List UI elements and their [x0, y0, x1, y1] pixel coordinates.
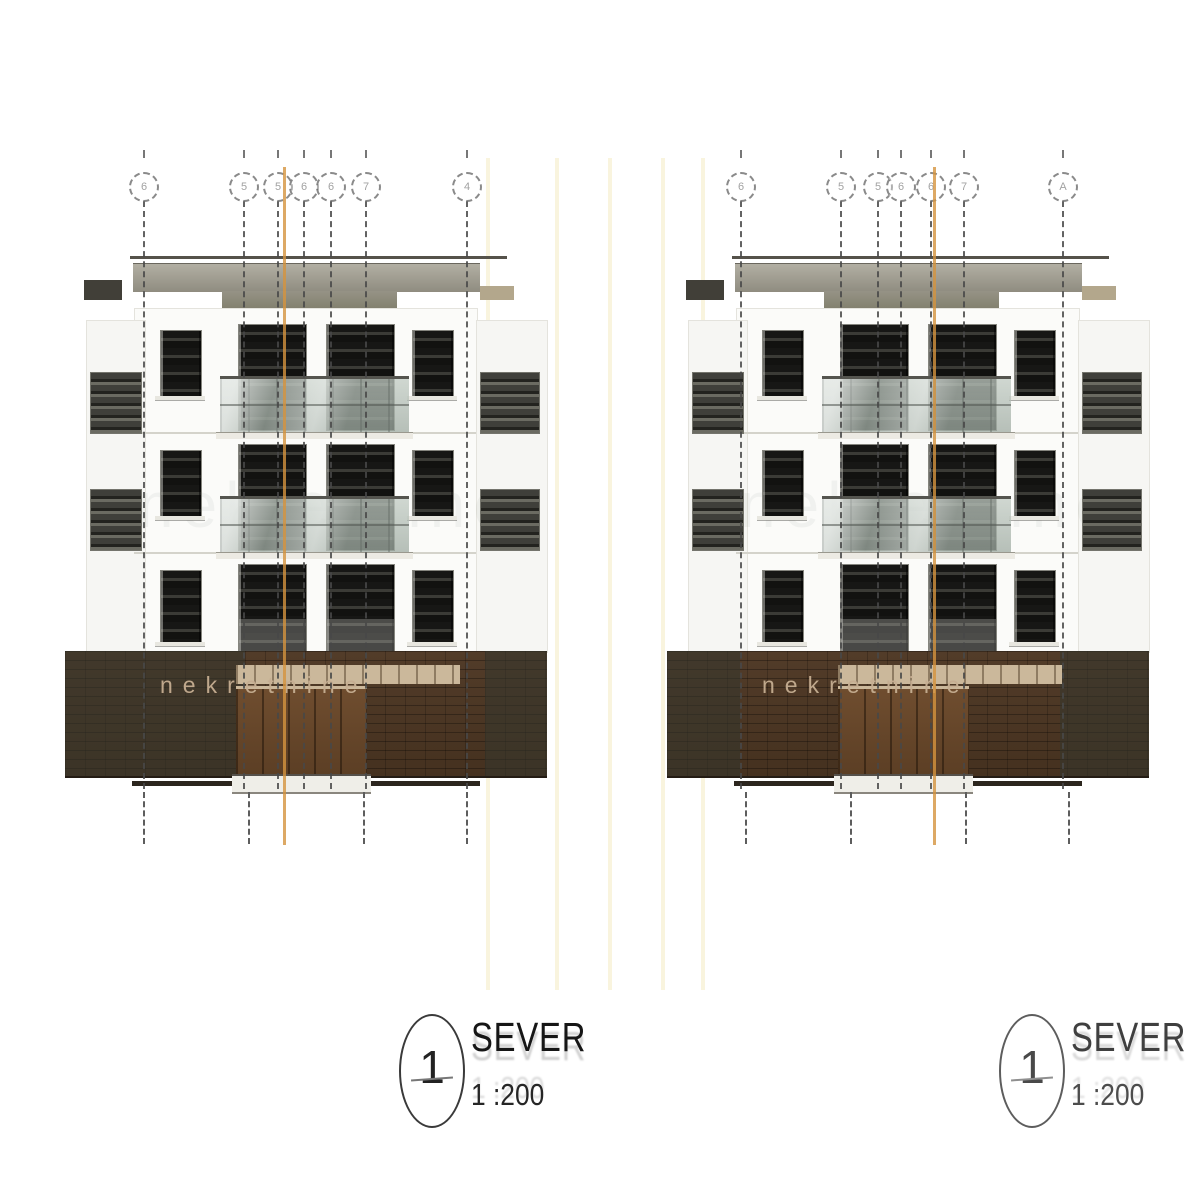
window-small: [412, 450, 454, 518]
railing-mid-rail: [220, 404, 409, 406]
grid-dash-below: [466, 792, 470, 844]
side-wing-left: [86, 320, 146, 653]
window-sill: [757, 396, 807, 400]
axis-tick: [277, 150, 279, 158]
window-small: [1014, 450, 1056, 518]
axis-marker-circle: A: [1048, 172, 1078, 202]
axis-tick: [1062, 150, 1064, 158]
axis-grid-line: [840, 201, 842, 789]
axis-marker-circle: 4: [452, 172, 482, 202]
axis-grid-line: [303, 201, 305, 789]
axis-tick: [365, 150, 367, 158]
axis-grid-line: [930, 201, 932, 789]
window-small: [762, 330, 804, 398]
axis-tick: [840, 150, 842, 158]
axis-grid-line: [277, 201, 279, 789]
wing-window: [1082, 372, 1142, 434]
faint-grid-line: [608, 158, 612, 990]
grid-dash-below: [745, 792, 749, 844]
window-sill: [1009, 516, 1059, 520]
window-lower-panel: [327, 619, 394, 652]
window-sill: [1009, 642, 1059, 646]
roof-edge-line: [130, 256, 507, 259]
grid-dash-below: [850, 792, 854, 844]
window-sill: [155, 642, 205, 646]
axis-grid-line: [330, 201, 332, 789]
balcony-glass-railing: [822, 376, 1011, 434]
window-balcony: [326, 564, 395, 653]
railing-mid-rail: [822, 524, 1011, 526]
axis-grid-line: [963, 201, 965, 789]
railing-mid-rail: [220, 524, 409, 526]
axis-grid-line: [466, 201, 468, 789]
window-small: [762, 570, 804, 644]
axis-tick: [877, 150, 879, 158]
axis-grid-line: [1062, 201, 1064, 789]
roof-slab: [133, 263, 480, 292]
grid-dash-below: [248, 792, 252, 844]
wing-window: [90, 372, 142, 434]
window-sill: [1009, 396, 1059, 400]
balcony-slab: [818, 552, 1015, 559]
grid-dash-below: [363, 792, 367, 844]
axis-marker-circle: 6: [916, 172, 946, 202]
grid-dash-below: [1068, 792, 1072, 844]
axis-tick: [466, 150, 468, 158]
window-sill: [407, 642, 457, 646]
balcony-glass-railing: [220, 496, 409, 554]
axis-marker-circle: 6: [726, 172, 756, 202]
window-lower-panel: [841, 619, 908, 652]
wing-roof-cap: [480, 286, 514, 300]
base-band-shaded-section: [65, 651, 245, 776]
balcony-glass-railing: [220, 376, 409, 434]
window-sill: [407, 516, 457, 520]
window-small: [762, 450, 804, 518]
axis-marker-circle: 6: [289, 172, 319, 202]
roof-slab: [735, 263, 1082, 292]
faint-grid-line: [555, 158, 559, 990]
wing-window: [692, 489, 744, 551]
window-sill: [155, 516, 205, 520]
window-sill: [155, 396, 205, 400]
axis-tick: [143, 150, 145, 158]
section-reference-line: [283, 167, 286, 845]
wing-roof-cap: [84, 280, 122, 300]
balcony-glass-railing: [822, 496, 1011, 554]
base-band-shaded-section: [1060, 651, 1149, 776]
axis-marker-circle: 6: [129, 172, 159, 202]
axis-marker-circle: 5: [229, 172, 259, 202]
entry-door-area: [838, 686, 969, 779]
window-balcony: [238, 564, 307, 653]
axis-marker-circle: 6: [886, 172, 916, 202]
axis-marker-circle: 5: [826, 172, 856, 202]
axis-tick: [740, 150, 742, 158]
window-sill: [757, 642, 807, 646]
entry-threshold: [232, 774, 371, 794]
window-small: [160, 570, 202, 644]
wing-window: [480, 489, 540, 551]
base-band-shaded-section: [667, 651, 740, 776]
axis-grid-line: [900, 201, 902, 789]
window-sill: [757, 516, 807, 520]
axis-tick: [303, 150, 305, 158]
axis-tick: [900, 150, 902, 158]
axis-grid-line: [143, 201, 145, 789]
window-small: [412, 570, 454, 644]
axis-grid-line: [740, 201, 742, 789]
balcony-slab: [216, 552, 413, 559]
window-balcony: [840, 564, 909, 653]
axis-grid-line: [365, 201, 367, 789]
balcony-slab: [818, 432, 1015, 439]
axis-marker-circle: 6: [316, 172, 346, 202]
wing-roof-cap: [686, 280, 724, 300]
window-lower-panel: [239, 619, 306, 652]
railing-mid-rail: [822, 404, 1011, 406]
entry-threshold: [834, 774, 973, 794]
window-small: [160, 450, 202, 518]
window-small: [1014, 330, 1056, 398]
elevation-sheet: 1 SEVER 1 :200 1 SEVER 1 :200 nekretnine…: [0, 0, 1200, 1184]
grid-dash-below: [965, 792, 969, 844]
axis-marker-circle: 7: [949, 172, 979, 202]
section-reference-line: [933, 167, 936, 845]
axis-marker-circle: 7: [351, 172, 381, 202]
axis-tick: [330, 150, 332, 158]
axis-tick: [243, 150, 245, 158]
wing-window: [480, 372, 540, 434]
window-sill: [407, 396, 457, 400]
wing-window: [692, 372, 744, 434]
side-wing-left: [688, 320, 748, 653]
base-band-shaded-section: [485, 651, 547, 776]
window-small: [160, 330, 202, 398]
roof-slab-lower: [222, 291, 397, 308]
wing-window: [90, 489, 142, 551]
window-small: [412, 330, 454, 398]
axis-grid-line: [877, 201, 879, 789]
window-small: [1014, 570, 1056, 644]
roof-slab-lower: [824, 291, 999, 308]
agency-watermark-text: nekretnine: [762, 672, 969, 699]
axis-tick: [963, 150, 965, 158]
roof-edge-line: [732, 256, 1109, 259]
grid-dash-below: [143, 792, 147, 844]
balcony-slab: [216, 432, 413, 439]
wing-roof-cap: [1082, 286, 1116, 300]
axis-tick: [930, 150, 932, 158]
axis-grid-line: [243, 201, 245, 789]
entry-door-area: [236, 686, 367, 779]
agency-watermark-text: nekretnine: [160, 672, 367, 699]
wing-window: [1082, 489, 1142, 551]
